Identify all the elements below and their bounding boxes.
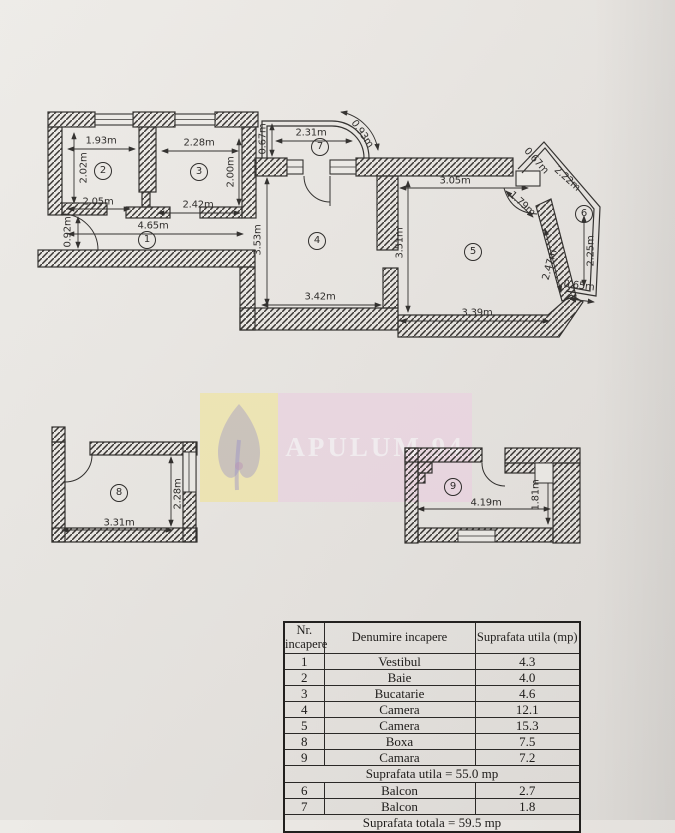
cell-name: Vestibul bbox=[324, 654, 475, 670]
cell-name: Camera bbox=[324, 718, 475, 734]
cell-nr: 2 bbox=[284, 670, 324, 686]
scanned-floor-plan-page: APULUM 94 bbox=[0, 0, 675, 820]
cell-area: 4.0 bbox=[475, 670, 580, 686]
subtotal-row-text: Suprafata utila = 55.0 mp bbox=[284, 766, 580, 783]
room8-walls bbox=[52, 427, 197, 542]
room9-walls bbox=[405, 448, 580, 543]
table-row: 4Camera12.1 bbox=[284, 702, 580, 718]
table-row: 3Bucatarie4.6 bbox=[284, 686, 580, 702]
cell-name: Bucatarie bbox=[324, 686, 475, 702]
cell-nr: 9 bbox=[284, 750, 324, 766]
table-row: 8Boxa7.5 bbox=[284, 734, 580, 750]
cell-name: Camera bbox=[324, 702, 475, 718]
table-row: 5Camera15.3 bbox=[284, 718, 580, 734]
cell-area: 15.3 bbox=[475, 718, 580, 734]
area-table: Nr. incapere Denumire incapere Suprafata… bbox=[283, 621, 581, 833]
col-header-nr: Nr. incapere bbox=[284, 622, 324, 654]
cell-nr: 6 bbox=[284, 783, 324, 799]
col-header-denumire: Denumire incapere bbox=[324, 622, 475, 654]
cell-name: Balcon bbox=[324, 799, 475, 815]
cell-area: 1.8 bbox=[475, 799, 580, 815]
cell-area: 7.2 bbox=[475, 750, 580, 766]
cell-area: 4.3 bbox=[475, 654, 580, 670]
area-table-wrap: Nr. incapere Denumire incapere Suprafata… bbox=[283, 621, 579, 833]
cell-nr: 5 bbox=[284, 718, 324, 734]
cell-name: Baie bbox=[324, 670, 475, 686]
cell-area: 2.7 bbox=[475, 783, 580, 799]
cell-nr: 7 bbox=[284, 799, 324, 815]
cell-nr: 4 bbox=[284, 702, 324, 718]
cell-name: Camara bbox=[324, 750, 475, 766]
col-header-suprafata: Suprafata utila (mp) bbox=[475, 622, 580, 654]
table-row: 7Balcon1.8 bbox=[284, 799, 580, 815]
room9-door-arc bbox=[482, 463, 505, 486]
total-row: Suprafata totala = 59.5 mp bbox=[284, 815, 580, 833]
cell-name: Boxa bbox=[324, 734, 475, 750]
cell-area: 4.6 bbox=[475, 686, 580, 702]
cell-area: 7.5 bbox=[475, 734, 580, 750]
cell-area: 12.1 bbox=[475, 702, 580, 718]
cell-nr: 3 bbox=[284, 686, 324, 702]
cell-nr: 1 bbox=[284, 654, 324, 670]
cell-nr: 8 bbox=[284, 734, 324, 750]
table-row: 1Vestibul4.3 bbox=[284, 654, 580, 670]
room8-window bbox=[183, 452, 196, 492]
subtotal-row: Suprafata utila = 55.0 mp bbox=[284, 766, 580, 783]
room8-door-arc bbox=[65, 455, 92, 482]
apartment-walls bbox=[38, 112, 583, 337]
balcony7-outline bbox=[262, 121, 369, 158]
table-header-row: Nr. incapere Denumire incapere Suprafata… bbox=[284, 622, 580, 654]
table-row: 2Baie4.0 bbox=[284, 670, 580, 686]
total-row-text: Suprafata totala = 59.5 mp bbox=[284, 815, 580, 833]
cell-name: Balcon bbox=[324, 783, 475, 799]
table-row: 9Camara7.2 bbox=[284, 750, 580, 766]
table-row: 6Balcon2.7 bbox=[284, 783, 580, 799]
floor-plan-drawing bbox=[0, 0, 675, 620]
